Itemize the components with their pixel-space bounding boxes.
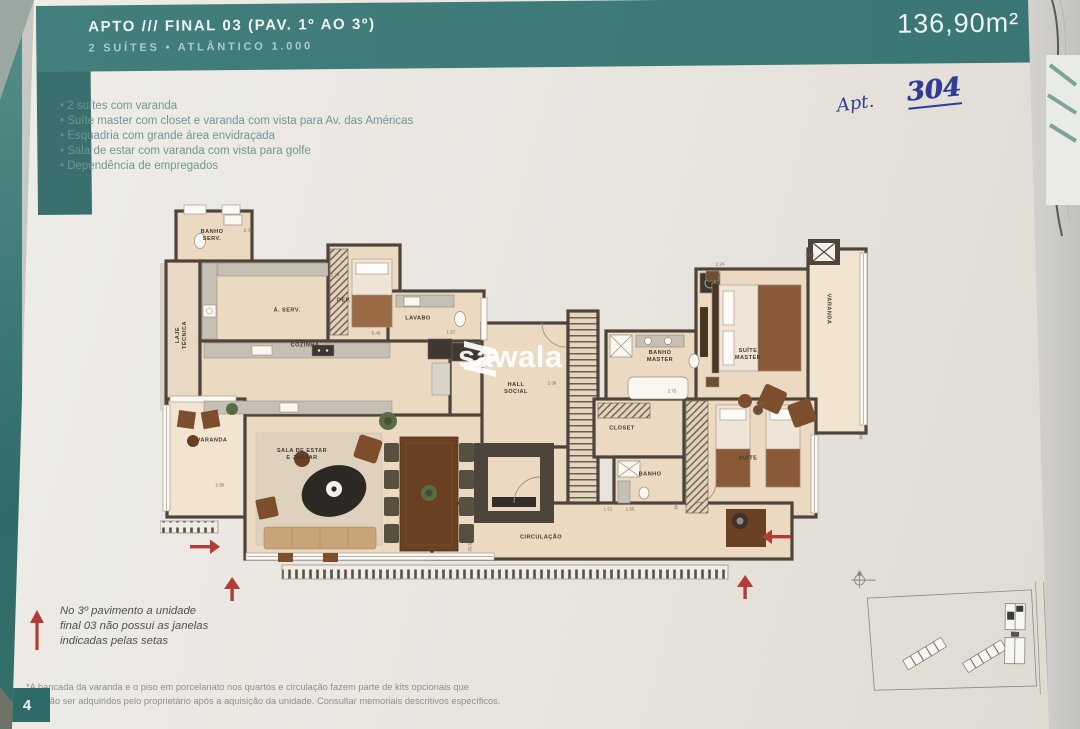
handwritten-number: 304 <box>905 72 962 109</box>
page-number: 4 <box>23 697 31 714</box>
dim-label: 4.24 <box>756 401 765 406</box>
floor-plan: BANHO SERV.LAJE TÉCNICAÁ. SERV.DEP.COZIN… <box>160 203 880 603</box>
building-block <box>963 640 1007 673</box>
footnote: *A bancada da varanda e o piso em porcel… <box>26 681 806 709</box>
arrow-up-icon <box>30 610 44 652</box>
watermark-text: sawala <box>458 339 563 375</box>
feature-list: 2 suítes com varanda Suíte master com cl… <box>60 100 530 175</box>
dim-label: 5.49 <box>372 331 381 336</box>
dim-label: 1.75 <box>377 319 386 324</box>
feature-item: 2 suítes com varanda <box>60 100 530 112</box>
dim-label: 1.04 <box>859 431 864 440</box>
window-note-text: No 3º pavimento a unidade final 03 não p… <box>60 604 286 649</box>
building-block <box>903 637 947 670</box>
brochure-page: APTO /// FINAL 03 (PAV. 1º AO 3º) 2 SUÍT… <box>0 0 1080 729</box>
dim-label: 2.74 <box>331 273 340 278</box>
dim-label: 8.52 <box>468 543 473 552</box>
watermark: sawala <box>458 339 563 375</box>
dim-label: 4.01 <box>806 253 815 258</box>
dim-label: 1.57 <box>447 330 456 335</box>
dimension-labels-layer: 2.302.741.755.491.572.362.242.754.244.01… <box>160 203 880 603</box>
dim-label: 2.56 <box>216 483 225 488</box>
feature-item: Sala de estar com varanda com vista para… <box>60 145 530 157</box>
background-other-brochure <box>1042 55 1080 205</box>
dim-label: 2.43 <box>674 501 679 510</box>
header-band: APTO /// FINAL 03 (PAV. 1º AO 3º) 2 SUÍT… <box>36 0 1038 72</box>
dim-label: 1.55 <box>626 507 635 512</box>
window-note: No 3º pavimento a unidade final 03 não p… <box>26 604 286 649</box>
building-block-highlighted <box>1005 604 1026 664</box>
handwritten-prefix: Apt. <box>835 91 875 117</box>
dim-label: 2.24 <box>716 262 725 267</box>
unit-area: 136,90m² <box>897 8 1019 40</box>
dim-label: 2.30 <box>244 228 253 233</box>
feature-item: Esquadria com grande área envidraçada <box>60 130 530 142</box>
feature-item: Suíte master com closet e varanda com vi… <box>60 115 530 127</box>
page-title: APTO /// FINAL 03 (PAV. 1º AO 3º) <box>88 16 376 36</box>
compass-icon <box>851 570 875 588</box>
dim-label: 2.36 <box>548 381 557 386</box>
site-key-plan <box>844 564 1050 701</box>
handwritten-apartment-number: Apt. 304 <box>834 71 962 120</box>
page-subtitle: 2 SUÍTES • ATLÂNTICO 1.000 <box>88 40 313 54</box>
photo-of-floorplan-brochure: { "header": { "title": "APTO /// FINAL 0… <box>0 0 1080 729</box>
feature-item: Dependência de empregados <box>60 160 530 172</box>
dim-label: 1.51 <box>604 507 613 512</box>
dim-label: 2.75 <box>668 389 677 394</box>
